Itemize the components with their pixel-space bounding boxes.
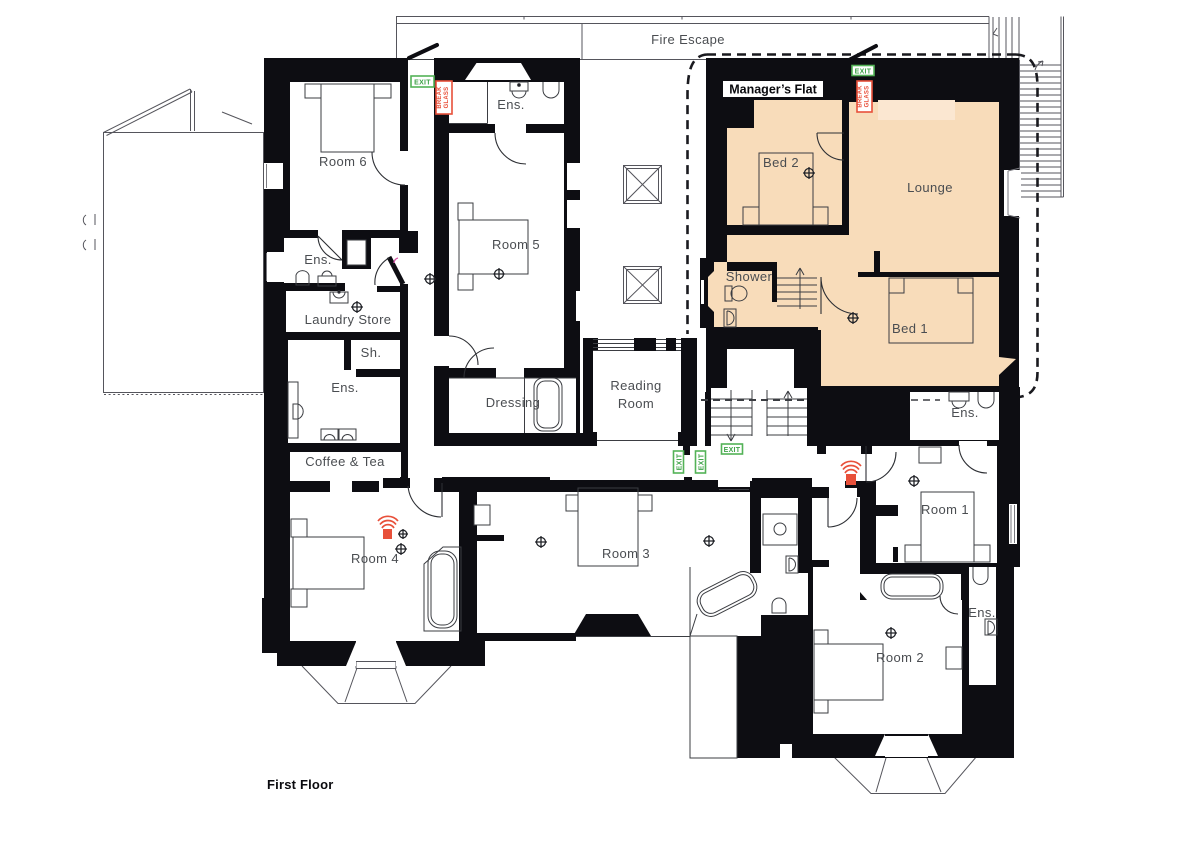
svg-text:BREAK: BREAK — [858, 85, 864, 108]
svg-text:BREAK: BREAK — [437, 86, 443, 109]
svg-text:Laundry Store: Laundry Store — [305, 312, 392, 327]
svg-text:Bed 2: Bed 2 — [763, 155, 799, 170]
svg-text:Ens.: Ens. — [951, 405, 979, 420]
svg-text:Room 6: Room 6 — [319, 154, 367, 169]
svg-text:Lounge: Lounge — [907, 180, 953, 195]
svg-text:First Floor: First Floor — [267, 777, 333, 792]
svg-text:Room 3: Room 3 — [602, 546, 650, 561]
svg-text:Fire Escape: Fire Escape — [651, 32, 725, 47]
svg-text:EXIT: EXIT — [414, 80, 431, 87]
svg-text:Room 2: Room 2 — [876, 650, 924, 665]
svg-text:Ens.: Ens. — [331, 380, 359, 395]
svg-text:Ens.: Ens. — [497, 97, 525, 112]
svg-text:Room 1: Room 1 — [921, 502, 969, 517]
svg-text:Shower: Shower — [726, 269, 773, 284]
svg-text:Ens.: Ens. — [304, 252, 332, 267]
svg-text:Room 5: Room 5 — [492, 237, 540, 252]
svg-text:Coffee & Tea: Coffee & Tea — [305, 454, 385, 469]
svg-text:Ens.: Ens. — [968, 605, 996, 620]
svg-text:Room 4: Room 4 — [351, 551, 399, 566]
svg-text:EXIT: EXIT — [699, 453, 706, 470]
svg-text:GLASS: GLASS — [865, 86, 871, 108]
svg-text:Room: Room — [618, 396, 654, 411]
svg-text:Sh.: Sh. — [361, 345, 382, 360]
svg-text:Dressing: Dressing — [486, 395, 541, 410]
svg-text:EXIT: EXIT — [677, 453, 684, 470]
svg-text:Reading: Reading — [610, 378, 661, 393]
svg-text:Bed 1: Bed 1 — [892, 321, 928, 336]
svg-text:GLASS: GLASS — [444, 87, 450, 109]
svg-text:Manager’s Flat: Manager’s Flat — [729, 83, 817, 97]
svg-text:EXIT: EXIT — [724, 447, 741, 454]
svg-text:EXIT: EXIT — [855, 69, 872, 76]
